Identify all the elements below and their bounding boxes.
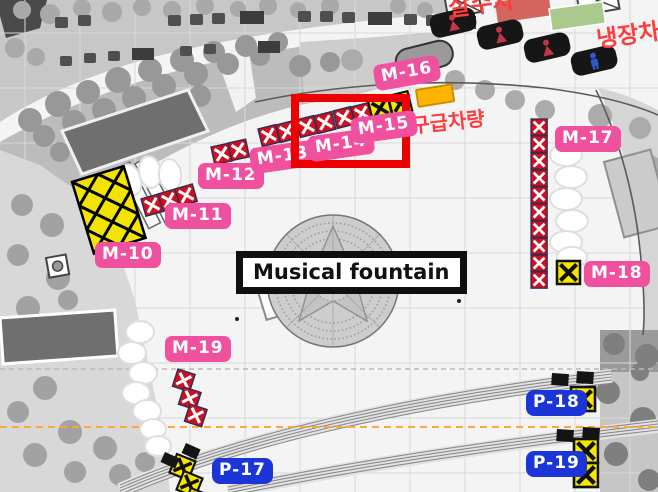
marker-label-m-19[interactable]: M-19 (165, 336, 231, 362)
building-left (0, 310, 118, 364)
marker-label-p-17[interactable]: P-17 (212, 458, 273, 484)
marker-label-m-10[interactable]: M-10 (95, 242, 161, 268)
equipment-box (46, 255, 69, 278)
site-map: M-10 M-11 M-12 M-13 M-14 M-15 M-16 M-17 … (0, 0, 658, 492)
musical-fountain-label: Musical fountain (236, 251, 467, 294)
marker-label-m-11[interactable]: M-11 (165, 203, 231, 229)
marker-label-p-18[interactable]: P-18 (526, 390, 587, 416)
marker-label-m-17[interactable]: M-17 (555, 126, 621, 152)
marker-label-m-18[interactable]: M-18 (584, 261, 650, 287)
red-x-barrier-column (531, 119, 547, 288)
marker-label-p-19[interactable]: P-19 (526, 451, 587, 477)
